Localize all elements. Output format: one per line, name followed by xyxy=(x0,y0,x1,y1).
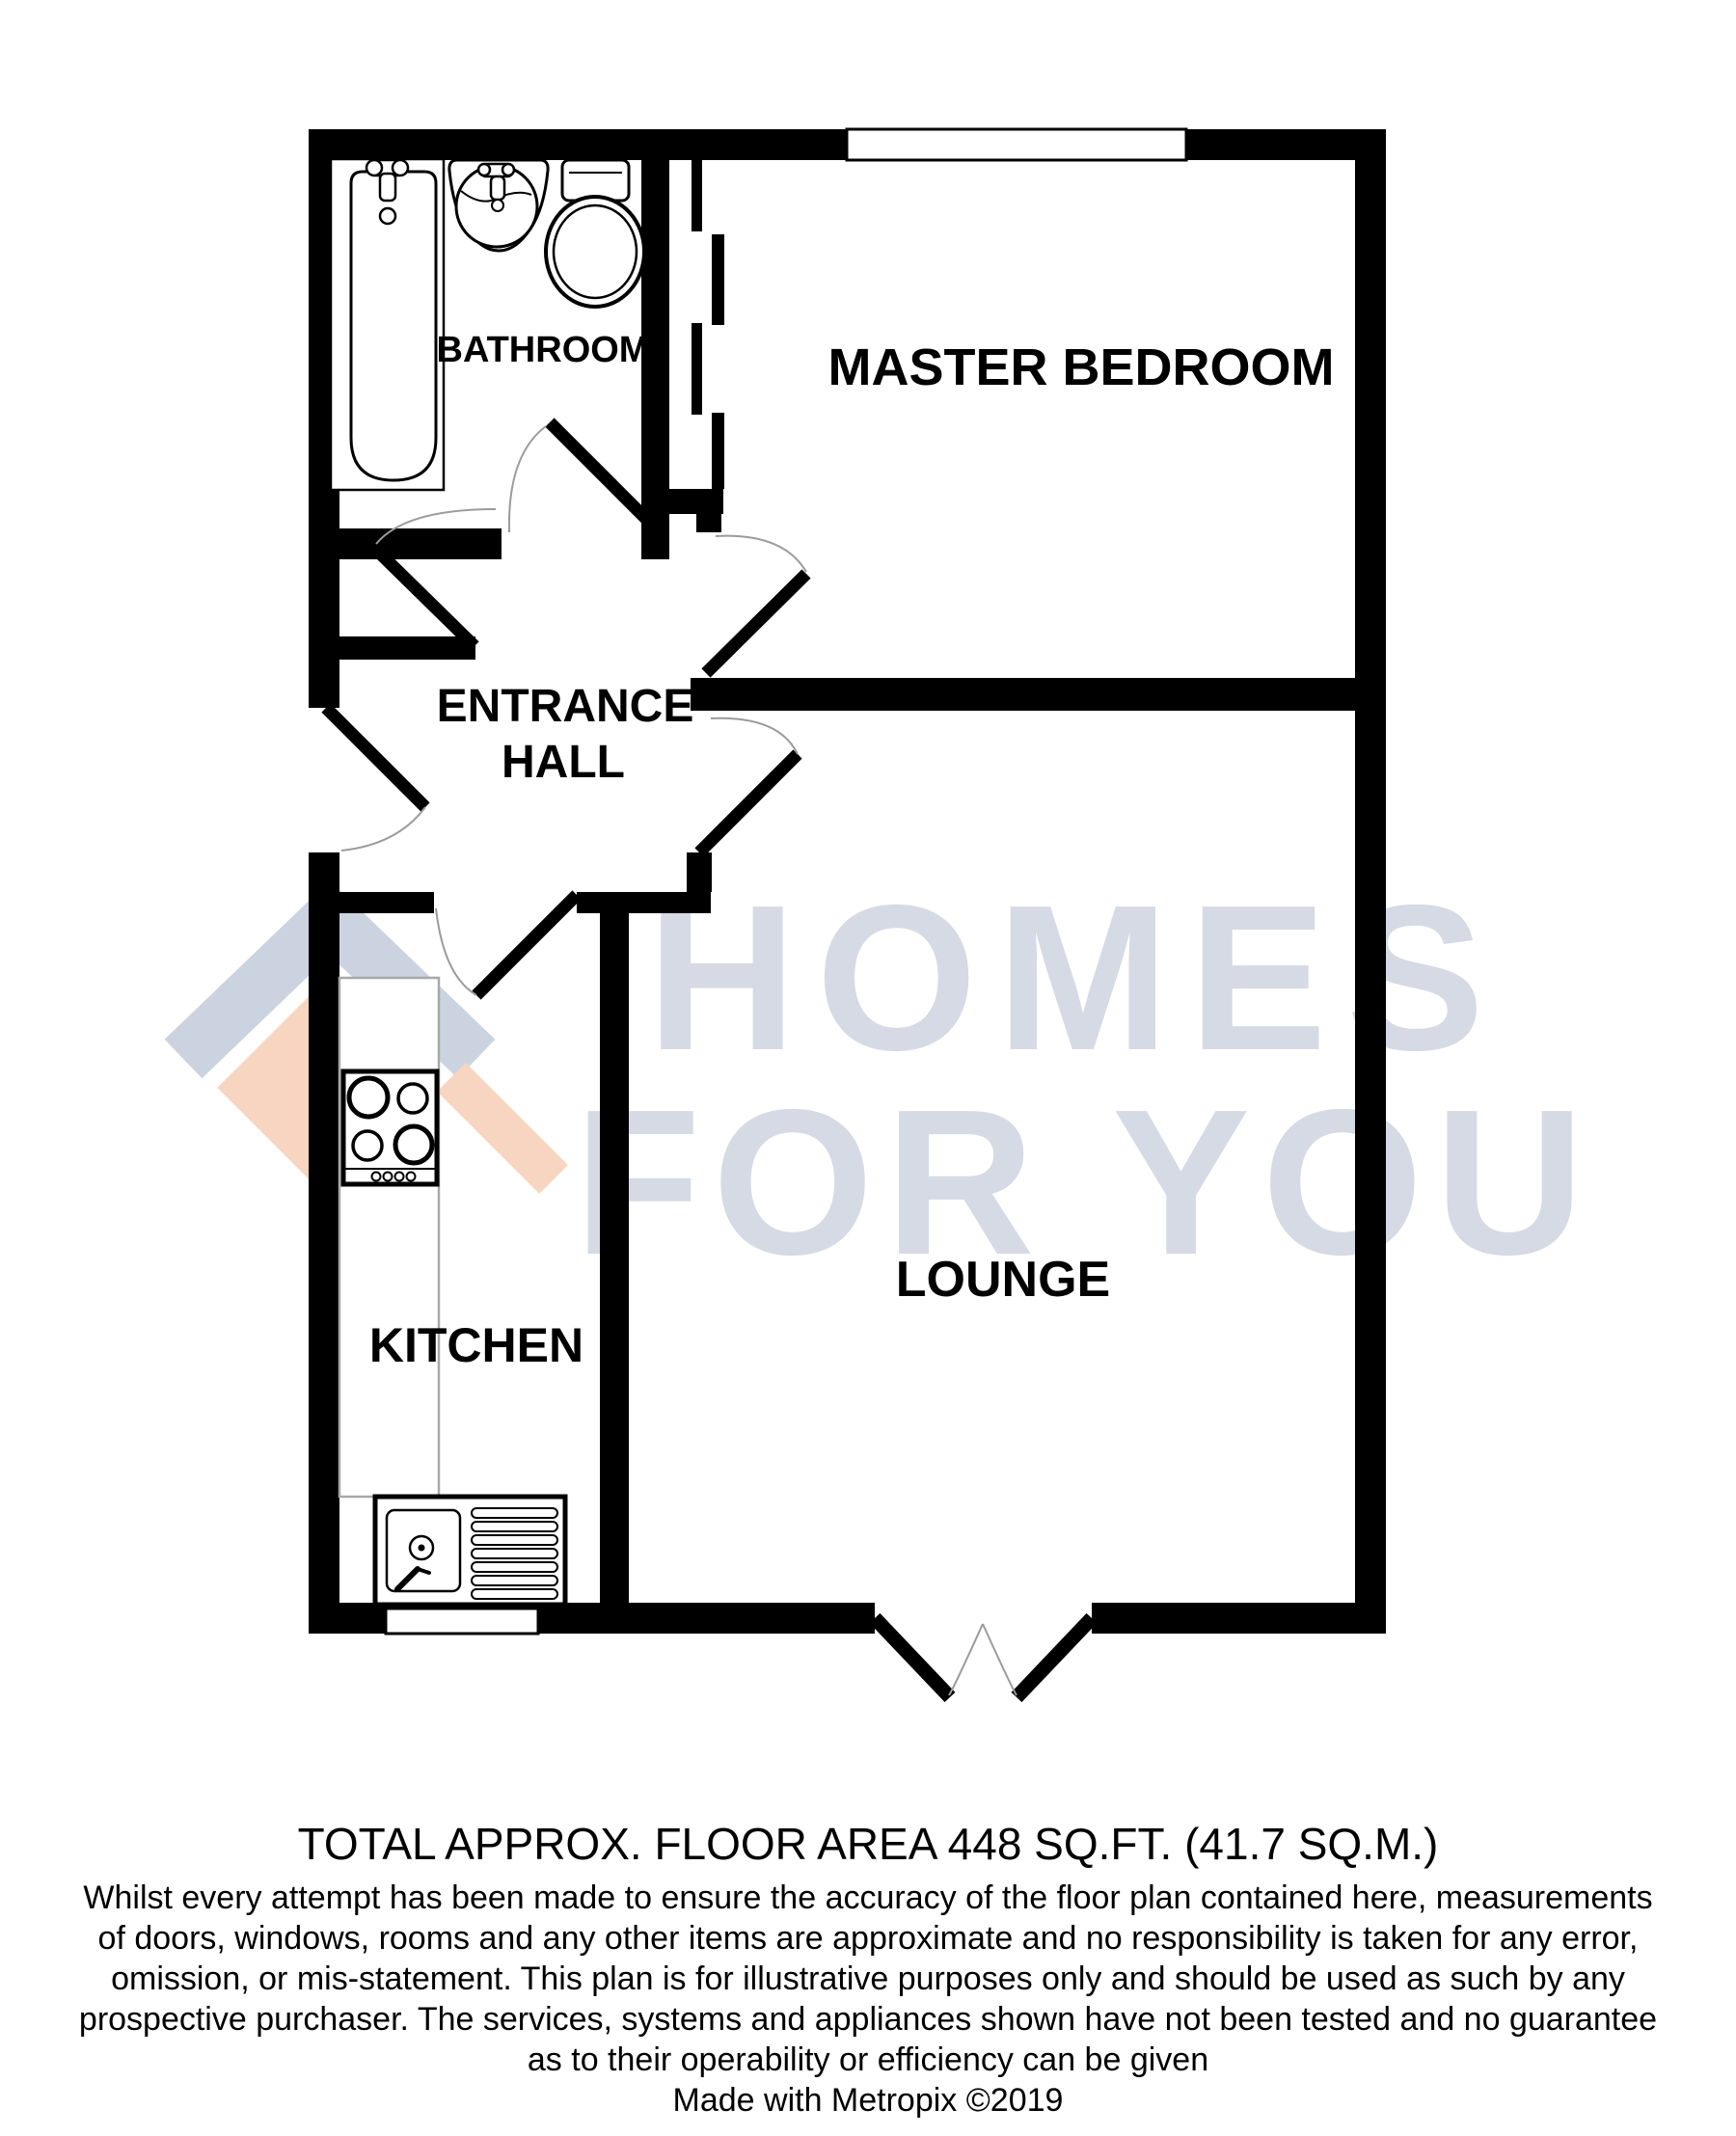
floor-plan-page: HOMES FOR YOU xyxy=(0,0,1736,2136)
bathroom-label: BATHROOM xyxy=(437,330,650,370)
top-window xyxy=(847,129,1186,160)
disclaimer-line: omission, or mis-statement. This plan is… xyxy=(0,1959,1736,1999)
worktop-counter xyxy=(339,978,439,1497)
kitchen-sink-drainer-icon xyxy=(375,1497,565,1605)
kitchen-window xyxy=(386,1609,538,1634)
wall-kitchen-top xyxy=(309,892,434,913)
disclaimer-line: of doors, windows, rooms and any other i… xyxy=(0,1918,1736,1959)
disclaimer-block: Whilst every attempt has been made to en… xyxy=(0,1878,1736,2121)
bedroom-window xyxy=(692,160,724,489)
wall-bedroom-sill xyxy=(641,489,723,514)
metropix-credit: Made with Metropix ©2019 xyxy=(0,2080,1736,2121)
lounge-door xyxy=(699,718,798,852)
wall-left-lower xyxy=(309,852,339,1634)
wall-bedroom-door-post xyxy=(696,511,721,532)
wall-lounge-door-post xyxy=(687,852,712,892)
toilet-icon xyxy=(546,160,644,307)
lounge-label: LOUNGE xyxy=(896,1252,1110,1308)
entrance-hall-label-1: ENTRANCE xyxy=(437,681,694,732)
wall-lounge-stub xyxy=(577,892,711,913)
wall-bathroom-bottom xyxy=(309,528,502,559)
master-bedroom-label: MASTER BEDROOM xyxy=(828,338,1335,396)
wall-kitchen-lounge-divider xyxy=(600,913,629,1603)
floor-plan-drawing: HOMES FOR YOU xyxy=(0,0,1736,2136)
wall-right xyxy=(1355,129,1386,1634)
wall-bottom-right xyxy=(1092,1603,1386,1634)
wall-bedroom-lounge-divider xyxy=(691,678,1386,711)
front-entrance-door xyxy=(326,708,425,851)
kitchen-door xyxy=(436,895,577,995)
bath-icon xyxy=(331,159,444,490)
floor-area-title: TOTAL APPROX. FLOOR AREA 448 SQ.FT. (41.… xyxy=(0,1819,1736,1869)
disclaimer-line: prospective purchaser. The services, sys… xyxy=(0,1999,1736,2040)
disclaimer-line: Whilst every attempt has been made to en… xyxy=(0,1878,1736,1918)
patio-double-door xyxy=(875,1618,1092,1697)
watermark-diamond-small-icon xyxy=(437,1063,568,1194)
hob-icon xyxy=(343,1071,437,1184)
bathroom-fixtures xyxy=(331,159,644,490)
master-bedroom-door xyxy=(706,536,806,673)
entrance-hall-label-2: HALL xyxy=(502,737,625,788)
wall-top-left xyxy=(309,129,847,160)
disclaimer-line: as to their operability or efficiency ca… xyxy=(0,2040,1736,2080)
basin-sink-icon xyxy=(449,160,548,251)
wall-hall-stub xyxy=(309,636,475,660)
kitchen-label: KITCHEN xyxy=(369,1318,583,1372)
